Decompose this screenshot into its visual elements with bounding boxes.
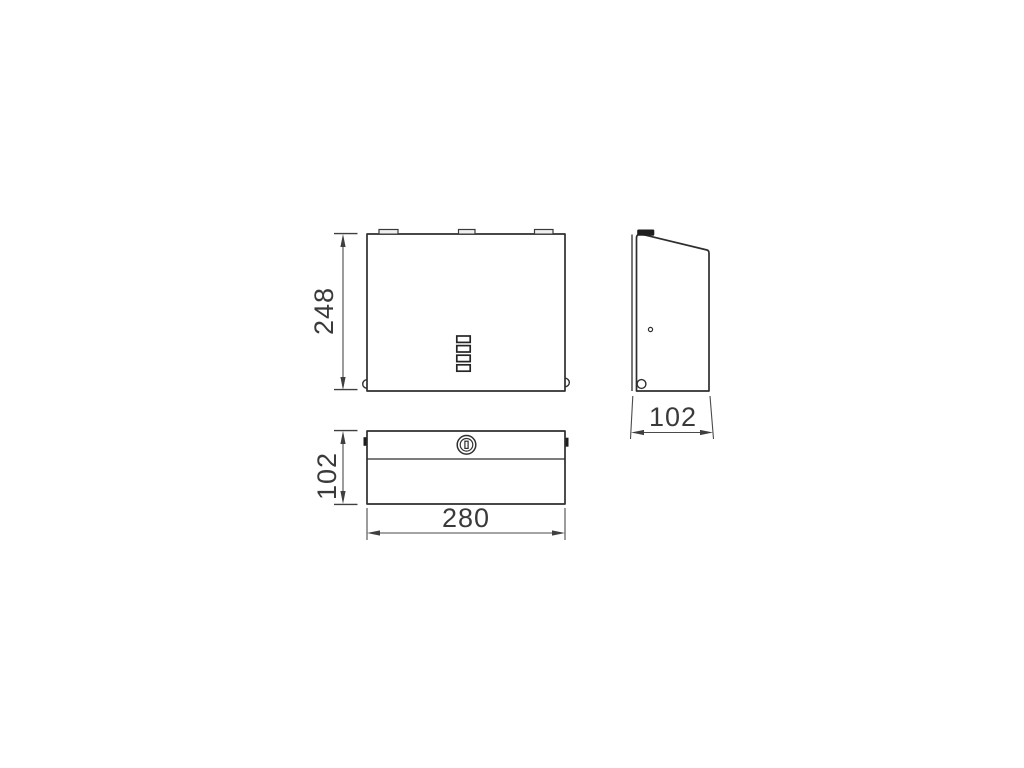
technical-drawing-canvas: 248 102 bbox=[0, 0, 1024, 768]
side-view bbox=[632, 230, 709, 391]
front-top-tab-center bbox=[459, 230, 476, 235]
front-top-tab-left bbox=[379, 230, 398, 235]
side-body-outline bbox=[637, 234, 710, 391]
dim-102-bottom-label: 102 bbox=[312, 452, 342, 500]
front-slot-1 bbox=[457, 336, 470, 342]
side-top-tab bbox=[638, 230, 655, 236]
dispenser-dimension-drawing: 248 102 bbox=[0, 0, 1024, 768]
front-top-tab-right bbox=[535, 230, 554, 235]
dim-248-arrow-up bbox=[340, 234, 345, 247]
dim-248-arrow-down bbox=[340, 377, 345, 390]
dimension-bottom-depth: 102 bbox=[312, 431, 358, 505]
lock-keyhole bbox=[457, 436, 476, 455]
dim-280-arrow-right bbox=[552, 530, 565, 535]
bottom-view bbox=[364, 431, 568, 504]
front-view bbox=[363, 230, 570, 392]
dim-102-side-label: 102 bbox=[649, 402, 697, 432]
front-slot-3 bbox=[457, 355, 470, 361]
dimension-side-depth: 102 bbox=[631, 396, 714, 439]
dimension-bottom-width: 280 bbox=[367, 503, 565, 540]
dim-280-label: 280 bbox=[442, 503, 490, 533]
lock-key-slot bbox=[465, 441, 468, 448]
front-slot-2 bbox=[457, 346, 470, 352]
dim-280-arrow-left bbox=[367, 530, 380, 535]
dim-102-side-arrow-left bbox=[631, 430, 644, 435]
dim-102-side-arrow-right bbox=[700, 430, 713, 435]
front-slot-4 bbox=[457, 365, 470, 371]
dim-102-bottom-arrow-up bbox=[340, 431, 345, 444]
dimension-front-height: 248 bbox=[309, 234, 358, 390]
dim-248-label: 248 bbox=[309, 287, 339, 335]
side-hinge-hole bbox=[637, 380, 646, 389]
